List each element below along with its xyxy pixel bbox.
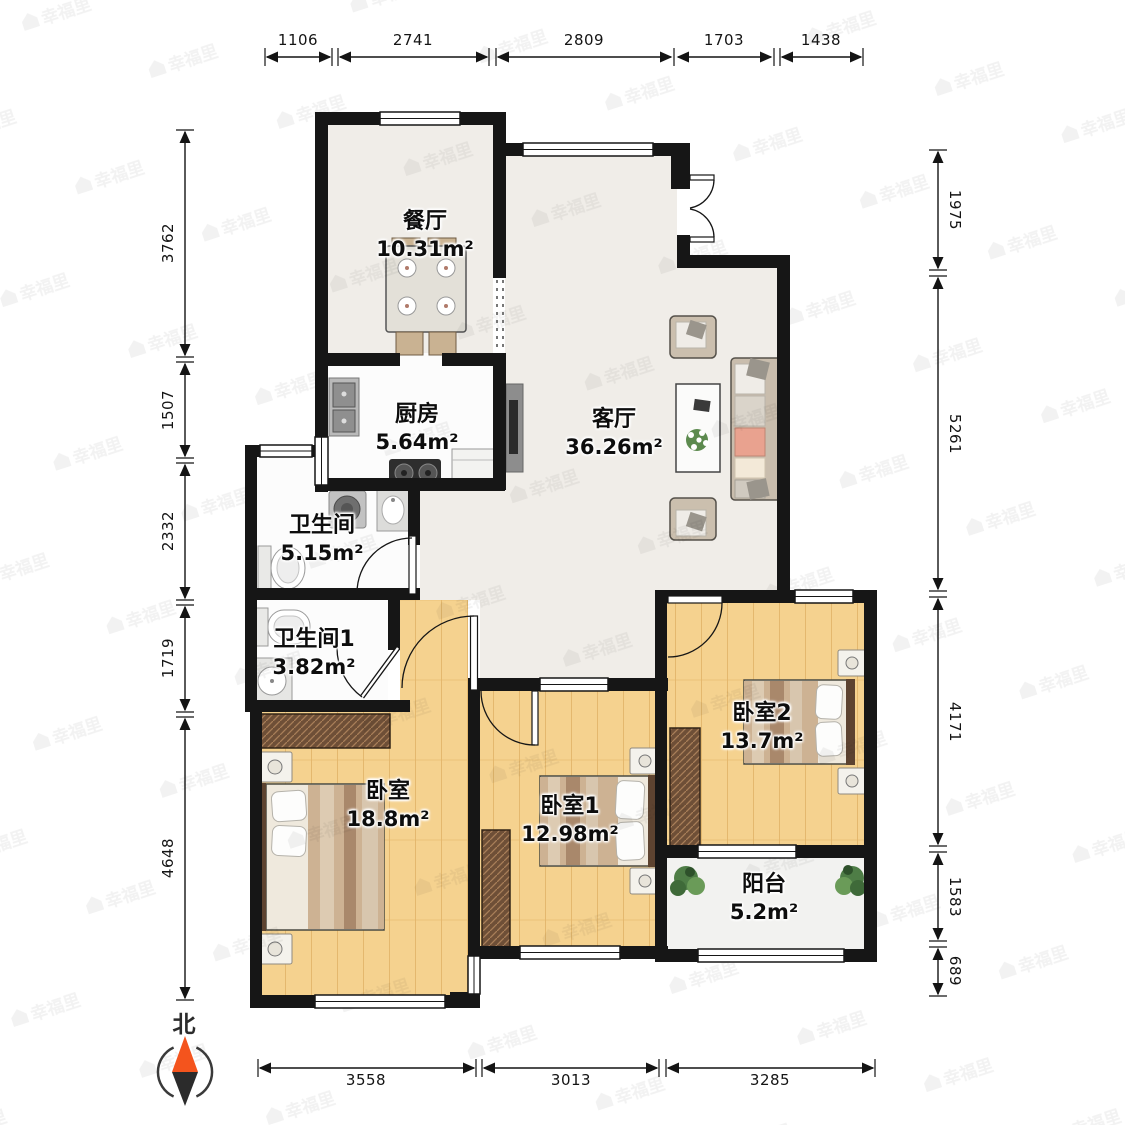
room-label-balcony: 阳台 5.2m²: [730, 871, 798, 925]
dim-top-3: 1703: [704, 31, 744, 49]
room-label-bath1: 卫生间1 3.82m²: [273, 626, 356, 680]
dim-left-0: 3762: [159, 223, 177, 263]
dim-left-3: 1719: [159, 638, 177, 678]
dim-bottom-1: 3013: [551, 1071, 591, 1089]
dim-top-2: 2809: [564, 31, 604, 49]
dim-right-1: 5261: [946, 414, 964, 454]
dim-bottom-2: 3285: [750, 1071, 790, 1089]
north-label: 北: [173, 1005, 196, 1039]
room-label-bedroom2: 卧室2 13.7m²: [721, 700, 804, 754]
dim-right-0: 1975: [946, 190, 964, 230]
room-name: 餐厅: [376, 208, 474, 236]
dim-bottom-0: 3558: [346, 1071, 386, 1089]
dim-top-1: 2741: [393, 31, 433, 49]
dim-top-0: 1106: [278, 31, 318, 49]
room-label-living: 客厅 36.26m²: [565, 406, 663, 460]
dim-left-1: 1507: [159, 390, 177, 430]
dim-left-2: 2332: [159, 511, 177, 551]
dim-right-4: 689: [946, 956, 964, 986]
room-label-kitchen: 厨房 5.64m²: [376, 401, 459, 455]
room-area: 10.31m²: [376, 236, 474, 262]
room-label-bedroom1: 卧室1 12.98m²: [521, 793, 619, 847]
dim-right-2: 4171: [946, 702, 964, 742]
floor-plan-page: 幸福里 幸福里: [0, 0, 1125, 1125]
dim-left-4: 4648: [159, 838, 177, 878]
room-label-dining: 餐厅 10.31m²: [376, 208, 474, 262]
dim-right-3: 1583: [946, 877, 964, 917]
dim-top-4: 1438: [801, 31, 841, 49]
room-label-bath: 卫生间 5.15m²: [281, 512, 364, 566]
room-label-bedroom: 卧室 18.8m²: [347, 778, 430, 832]
